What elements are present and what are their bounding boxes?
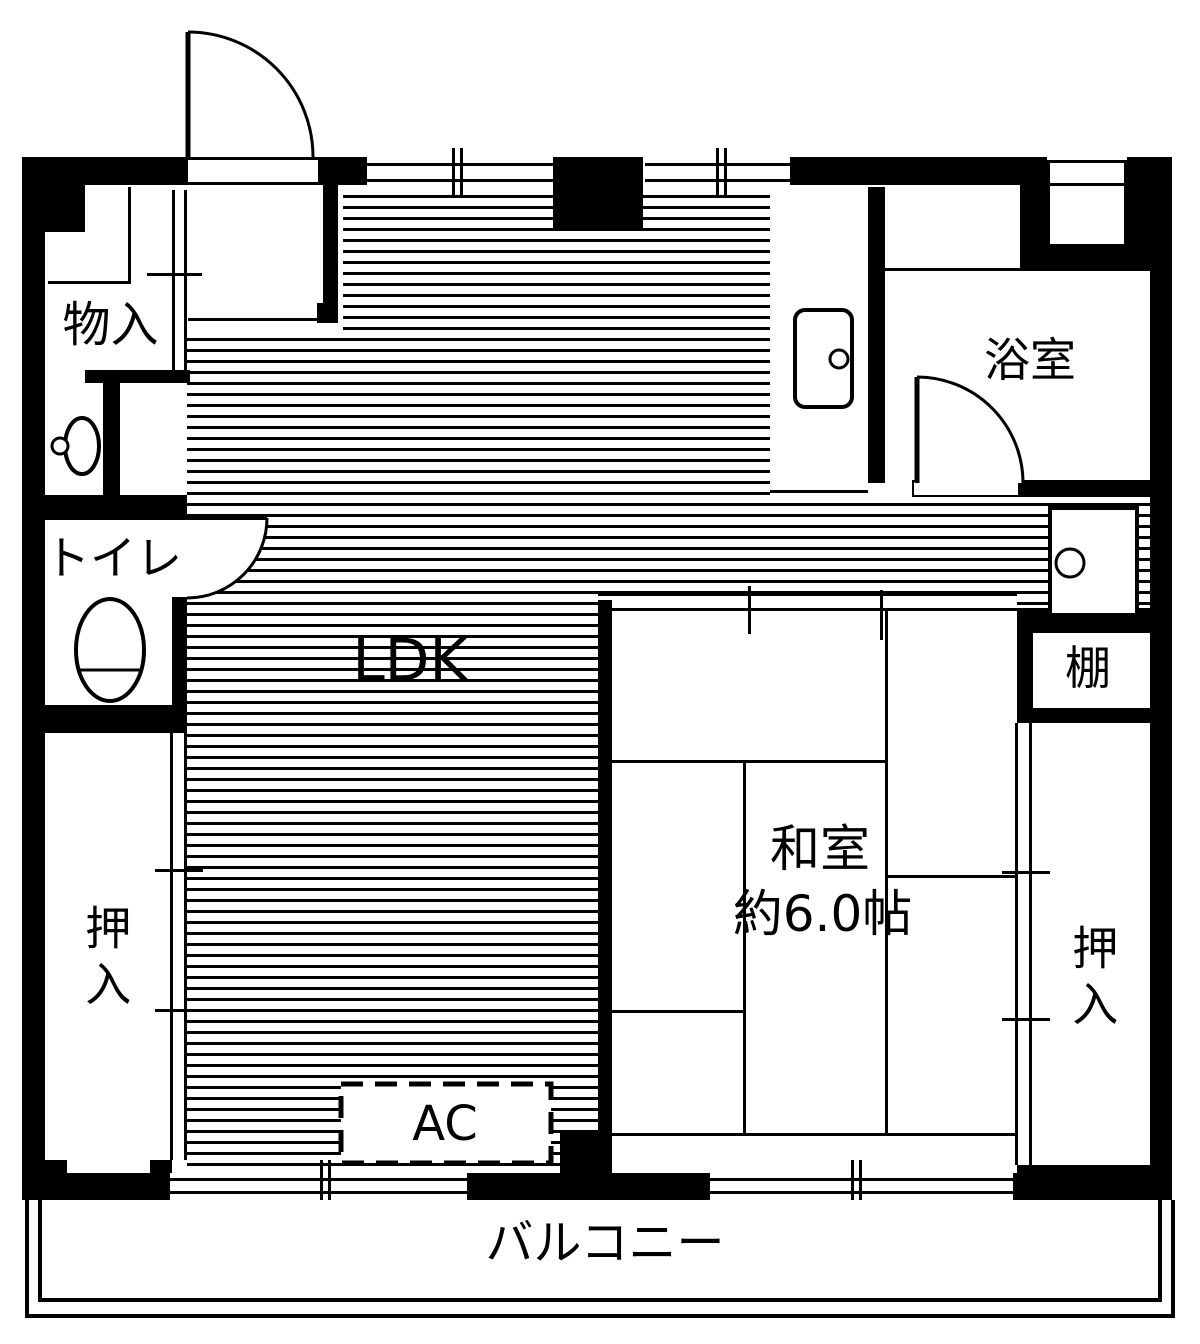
washbasin-fixture — [52, 418, 99, 474]
ac-label: AC — [390, 1095, 500, 1153]
shelf-label: 棚 — [1060, 638, 1116, 698]
closet-left-label: 押入 — [75, 860, 135, 1060]
toilet-door-swing — [187, 518, 267, 598]
balcony-label: バルコニー — [455, 1213, 755, 1273]
kitchen-sink-fixture — [1050, 508, 1137, 615]
bathroom-door-swing — [917, 377, 1023, 483]
closet-right-label: 押入 — [1062, 880, 1122, 1080]
fixtures-overlay — [0, 0, 1200, 1344]
washing-machine-pan-fixture — [795, 310, 852, 407]
ldk-label: LDK — [335, 628, 485, 694]
floor-plan: 物入 トイレ LDK 浴室 棚 和室 約6.0帖 押入 押入 AC バルコニー — [0, 0, 1200, 1344]
bathroom-label: 浴室 — [955, 330, 1105, 390]
entrance-door-swing — [188, 32, 313, 157]
storage-label: 物入 — [38, 295, 183, 355]
washitsu-label: 和室 — [745, 820, 895, 878]
toilet-bowl-fixture — [76, 599, 144, 701]
washitsu-size-label: 約6.0帖 — [710, 885, 935, 943]
toilet-label: トイレ — [33, 528, 193, 588]
